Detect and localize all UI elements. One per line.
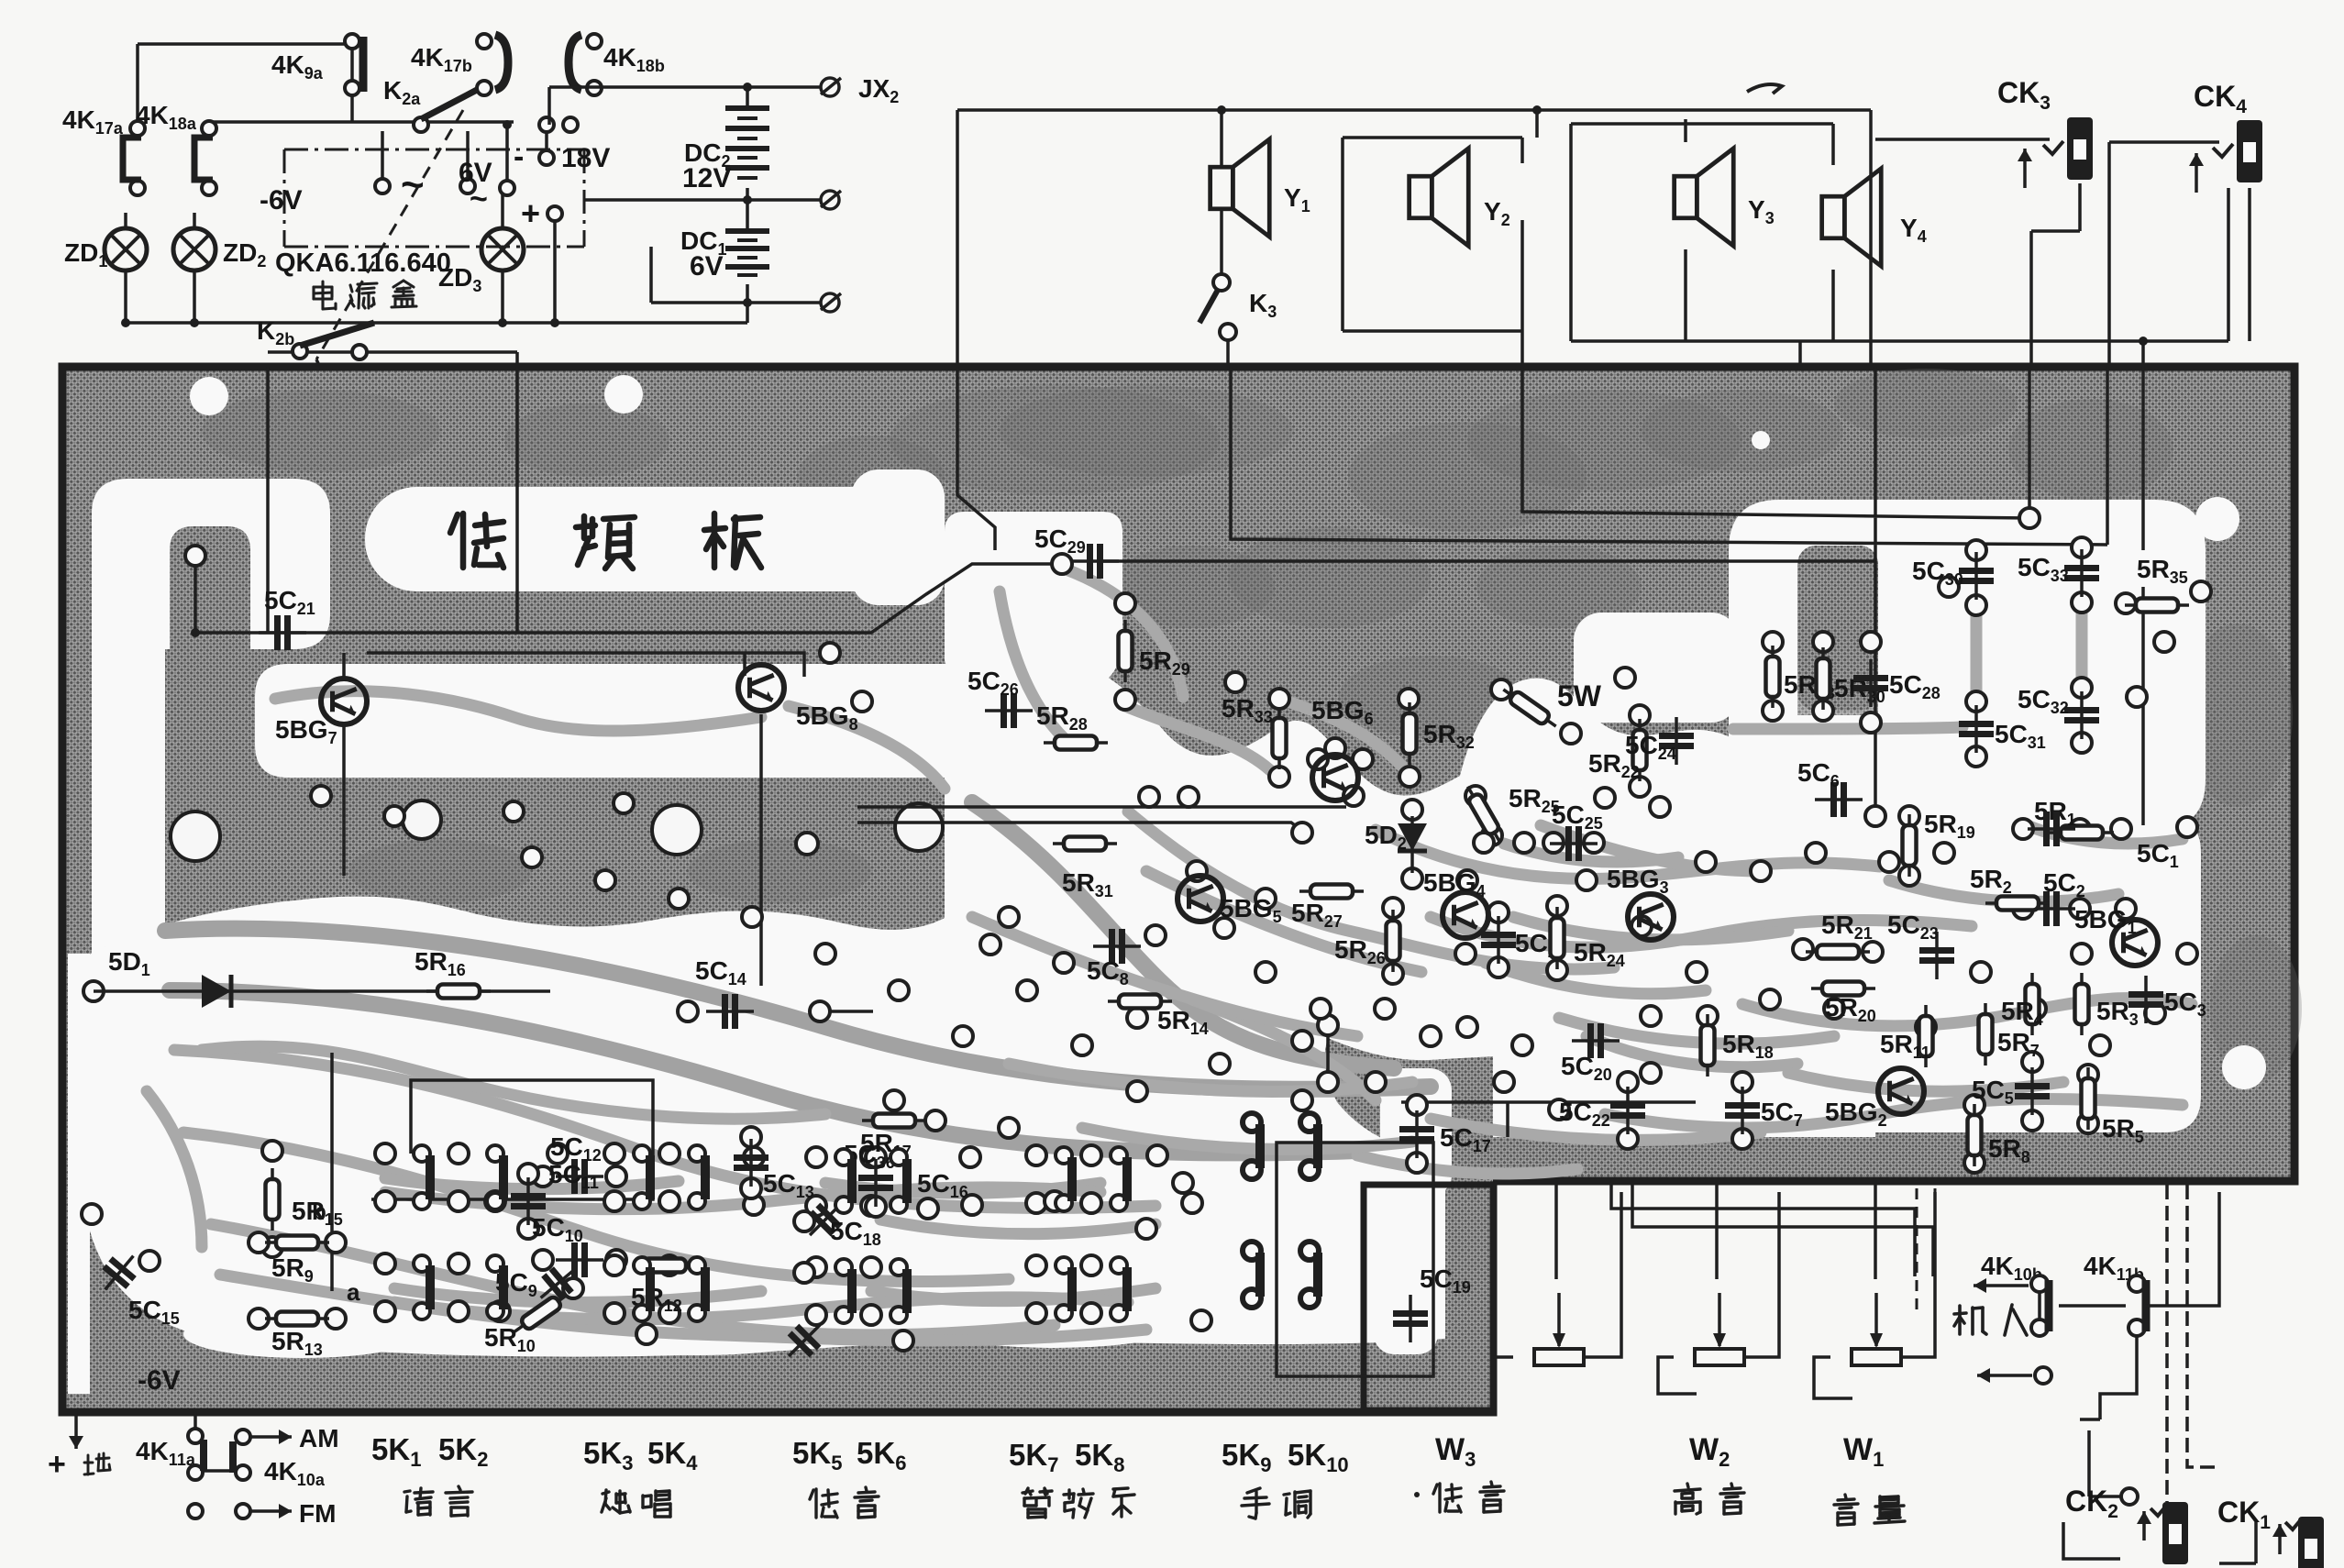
svg-text:5BG5: 5BG5 [1220, 894, 1282, 926]
svg-text:-6V: -6V [260, 185, 303, 215]
svg-text:5W: 5W [1557, 679, 1602, 712]
svg-text:5BG1: 5BG1 [2074, 905, 2137, 937]
svg-text:~: ~ [401, 162, 425, 207]
svg-text:-6V: -6V [138, 1365, 181, 1396]
svg-text:6V: 6V [690, 251, 724, 282]
svg-text:+: + [521, 194, 540, 232]
svg-text:5BG2: 5BG2 [1825, 1098, 1887, 1130]
svg-text:12V: 12V [682, 163, 731, 193]
svg-text:FM: FM [299, 1499, 336, 1528]
svg-text:-: - [514, 139, 524, 174]
svg-text:+: + [48, 1447, 66, 1482]
svg-text:a: a [347, 1278, 360, 1306]
svg-text:b: b [312, 1198, 326, 1225]
svg-text:~: ~ [470, 182, 488, 216]
svg-text:5BG6: 5BG6 [1311, 696, 1374, 728]
svg-text:QKA6.116.640: QKA6.116.640 [275, 248, 451, 278]
svg-text:5BG3: 5BG3 [1607, 865, 1669, 897]
svg-text:5BG8: 5BG8 [796, 701, 858, 734]
svg-text:AM: AM [299, 1424, 339, 1452]
svg-text:5BG7: 5BG7 [275, 715, 337, 747]
svg-text:18V: 18V [561, 143, 610, 173]
svg-text:5BG4: 5BG4 [1423, 868, 1486, 900]
